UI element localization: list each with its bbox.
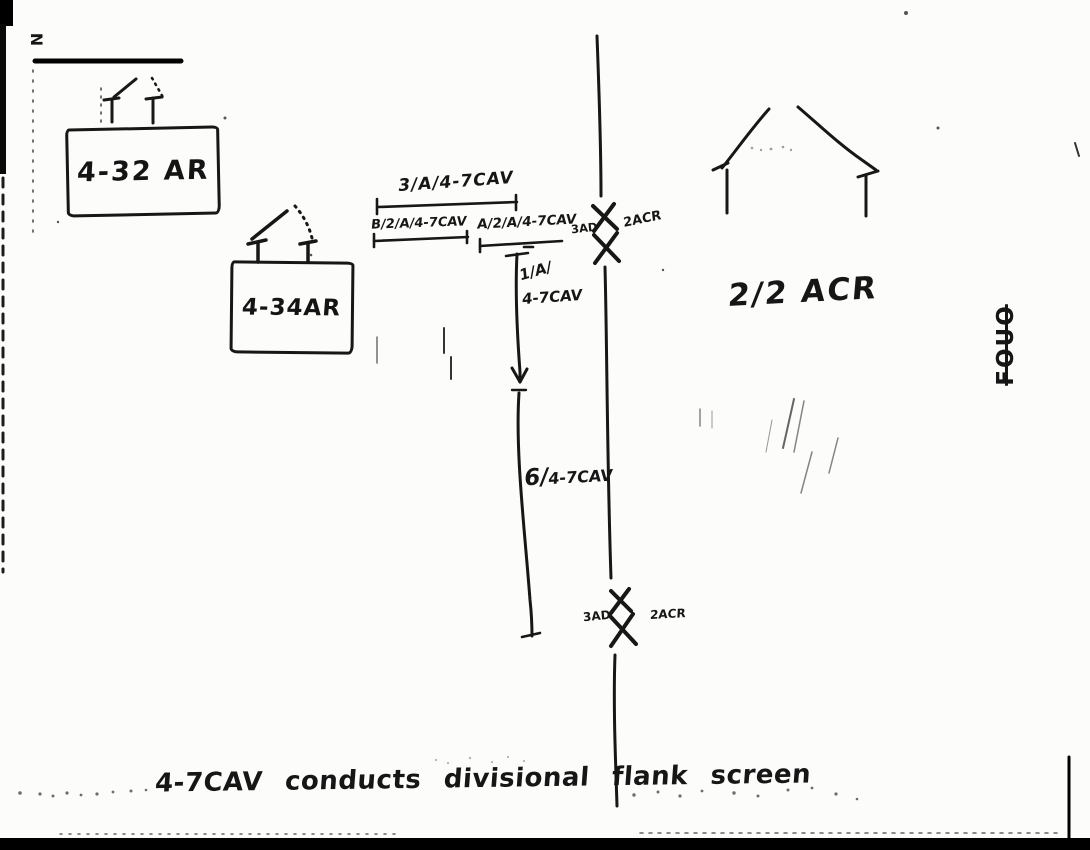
fouo-watermark: FOUO bbox=[986, 285, 1026, 405]
boundary-label-3ad-lower: 3AD bbox=[582, 608, 611, 624]
screen-label-6: 6/4-7CAV bbox=[523, 461, 614, 492]
boundary-label-3ad-upper: 3AD bbox=[570, 220, 598, 237]
screen-line-a2a bbox=[480, 239, 562, 252]
advance-arrow-icon bbox=[104, 78, 164, 123]
caption-left-dots bbox=[18, 789, 147, 798]
boundary-label-2acr-lower: 2ACR bbox=[650, 606, 686, 622]
scanned-tactical-sketch: N 4-32 AR 4-34AR 3/A/4-7CAV B/2/A/4-7CAV… bbox=[0, 0, 1090, 850]
screen-segment-6 bbox=[512, 390, 540, 637]
large-advance-arrow-icon bbox=[713, 107, 878, 216]
boundary-x-icon bbox=[610, 589, 636, 646]
screen-line-b2a bbox=[374, 231, 468, 247]
advance-arrow-icon bbox=[248, 206, 316, 262]
screen-label-6-unit: 4-7CAV bbox=[547, 466, 613, 488]
unit-box-4-32ar: 4-32 AR bbox=[65, 125, 221, 217]
unit-box-4-34ar: 4-34AR bbox=[230, 260, 355, 354]
screen-label-6-prefix: 6/ bbox=[523, 464, 550, 491]
boundary-line bbox=[597, 36, 617, 806]
unit-label: 4-32 AR bbox=[76, 155, 210, 189]
unit-label: 4-34AR bbox=[241, 294, 342, 321]
north-marker: N bbox=[27, 33, 46, 46]
screen-line-3a bbox=[377, 195, 517, 214]
